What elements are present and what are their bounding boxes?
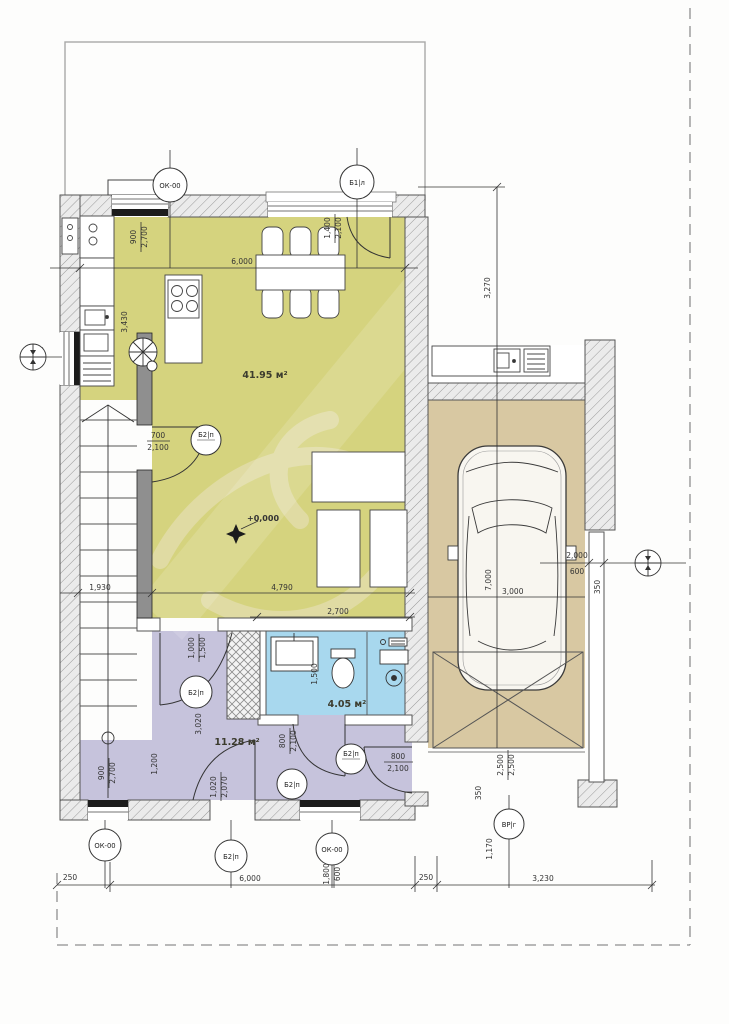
tag-garage-door: Б2|п xyxy=(336,744,366,774)
dim-garage-w: 3,000 xyxy=(502,587,524,596)
car-mirror-left xyxy=(448,546,458,560)
tag-entry-door: Б2|п xyxy=(215,840,247,872)
tag-hall-door-text: Б2|п xyxy=(188,689,204,697)
dim-garage-l: 7,000 xyxy=(484,569,493,591)
dining-table xyxy=(256,255,345,290)
dim-balcony-w: 1,400 xyxy=(323,217,332,239)
living-area-label: 41.95 м² xyxy=(242,370,287,381)
tag-garage-door-text: Б2|п xyxy=(343,750,359,758)
kitchen-island xyxy=(165,275,202,363)
dim-bath-door-h: 2,100 xyxy=(289,730,298,752)
dim-win-b-w: 1,800 xyxy=(322,863,331,885)
dim-win-b-h: 600 xyxy=(333,867,342,882)
tag-hall-door: Б2|п xyxy=(180,676,212,708)
level-mark-text: +0,000 xyxy=(247,514,279,523)
window-bottom-left xyxy=(88,800,128,820)
dim-b-off-l: 250 xyxy=(63,873,78,882)
tag-stair-door-text: Б2|п xyxy=(198,431,214,439)
sofa-chaise xyxy=(317,510,360,587)
dim-win-tl-h: 2,700 xyxy=(140,226,149,248)
dim-right-win-w: 2,000 xyxy=(566,551,588,560)
dim-garage-offset: 3,270 xyxy=(483,277,492,299)
dim-win-bl-w: 900 xyxy=(97,766,106,781)
sofa-group xyxy=(312,452,407,587)
dim-stair-run: 1,930 xyxy=(89,583,111,592)
floor-plan-drawing: 6,000 3,270 900 2,700 3,430 700 2,100 4,… xyxy=(0,0,729,1024)
dim-bath-w: 2,700 xyxy=(327,607,349,616)
sofa xyxy=(312,452,405,502)
dim-gate-h: 2,500 xyxy=(507,754,516,776)
tag-stair-door: Б2|п xyxy=(191,425,221,455)
dim-hall-len: 3,020 xyxy=(194,713,203,735)
tag-bath-door: Б2|п xyxy=(277,769,307,799)
floor-plan-page: 6,000 3,270 900 2,700 3,430 700 2,100 4,… xyxy=(0,0,729,1024)
tag-balcony-door: Б1|л xyxy=(340,165,374,199)
hall-area-label: 11.28 м² xyxy=(214,737,259,748)
tag-window-top-text: ОК-00 xyxy=(159,182,180,190)
dim-b-right: 3,230 xyxy=(532,874,554,883)
axis-marker-right xyxy=(635,550,661,576)
dim-right-win-h: 600 xyxy=(570,567,585,576)
stairs xyxy=(80,405,137,798)
stair-wall xyxy=(137,333,152,618)
dim-gate-off: 1,170 xyxy=(485,838,494,860)
dim-stair-door-h: 2,100 xyxy=(147,443,169,452)
dim-gdoor-w: 800 xyxy=(391,752,406,761)
dim-b-off-m: 250 xyxy=(419,873,434,882)
tag-window-b-text: ОК-00 xyxy=(321,846,342,854)
tag-window-bl: ОК-00 xyxy=(89,829,121,861)
bath-area-label: 4.05 м² xyxy=(328,699,367,710)
tag-bath-door-text: Б2|п xyxy=(284,781,300,789)
dim-hall-side: 1,200 xyxy=(150,753,159,775)
dim-wall-b: 350 xyxy=(593,580,602,595)
dim-bath-d: 1,500 xyxy=(310,663,319,685)
dim-balcony-h: 2,100 xyxy=(334,217,343,239)
utility-counter xyxy=(432,346,550,376)
dim-win-tl-w: 900 xyxy=(129,230,138,245)
toilet xyxy=(331,649,355,688)
dim-ward-b: 1,500 xyxy=(198,637,207,659)
dim-bath-door-w: 800 xyxy=(278,734,287,749)
dim-ward-a: 1,000 xyxy=(187,637,196,659)
tag-window-top: ОК-00 xyxy=(153,168,187,202)
dim-b-width: 6,000 xyxy=(239,874,261,883)
utility-sink xyxy=(494,349,520,372)
window-bottom-mid xyxy=(300,800,360,820)
tag-window-bl-text: ОК-00 xyxy=(94,842,115,850)
dim-entry-h: 2,070 xyxy=(220,776,229,798)
dim-stair-door-w: 700 xyxy=(151,431,166,440)
dim-living-w: 4,790 xyxy=(271,583,293,592)
coffee-table xyxy=(370,510,407,587)
tag-gate-text: ВР|г xyxy=(502,821,517,829)
utility-appliance xyxy=(524,349,548,372)
balcony-opening xyxy=(266,192,396,217)
wardrobe xyxy=(227,631,260,719)
dining-set xyxy=(256,227,345,318)
dim-top-width: 6,000 xyxy=(231,257,253,266)
dim-gdoor-h: 2,100 xyxy=(387,764,409,773)
tag-entry-door-text: Б2|п xyxy=(223,853,239,861)
dim-gate-w: 2,500 xyxy=(496,754,505,776)
window-left-wall xyxy=(60,332,80,385)
tag-window-b: ОК-00 xyxy=(316,833,348,865)
tag-gate: ВР|г xyxy=(494,809,524,839)
dim-entry-w: 1,020 xyxy=(209,776,218,798)
dim-win-bl-h: 2,700 xyxy=(108,762,117,784)
tag-balcony-door-text: Б1|л xyxy=(349,179,365,187)
axis-marker-left xyxy=(20,344,46,370)
dim-wall-a: 350 xyxy=(474,786,483,801)
dim-kitchen-left: 3,430 xyxy=(120,311,129,333)
car xyxy=(448,446,576,690)
